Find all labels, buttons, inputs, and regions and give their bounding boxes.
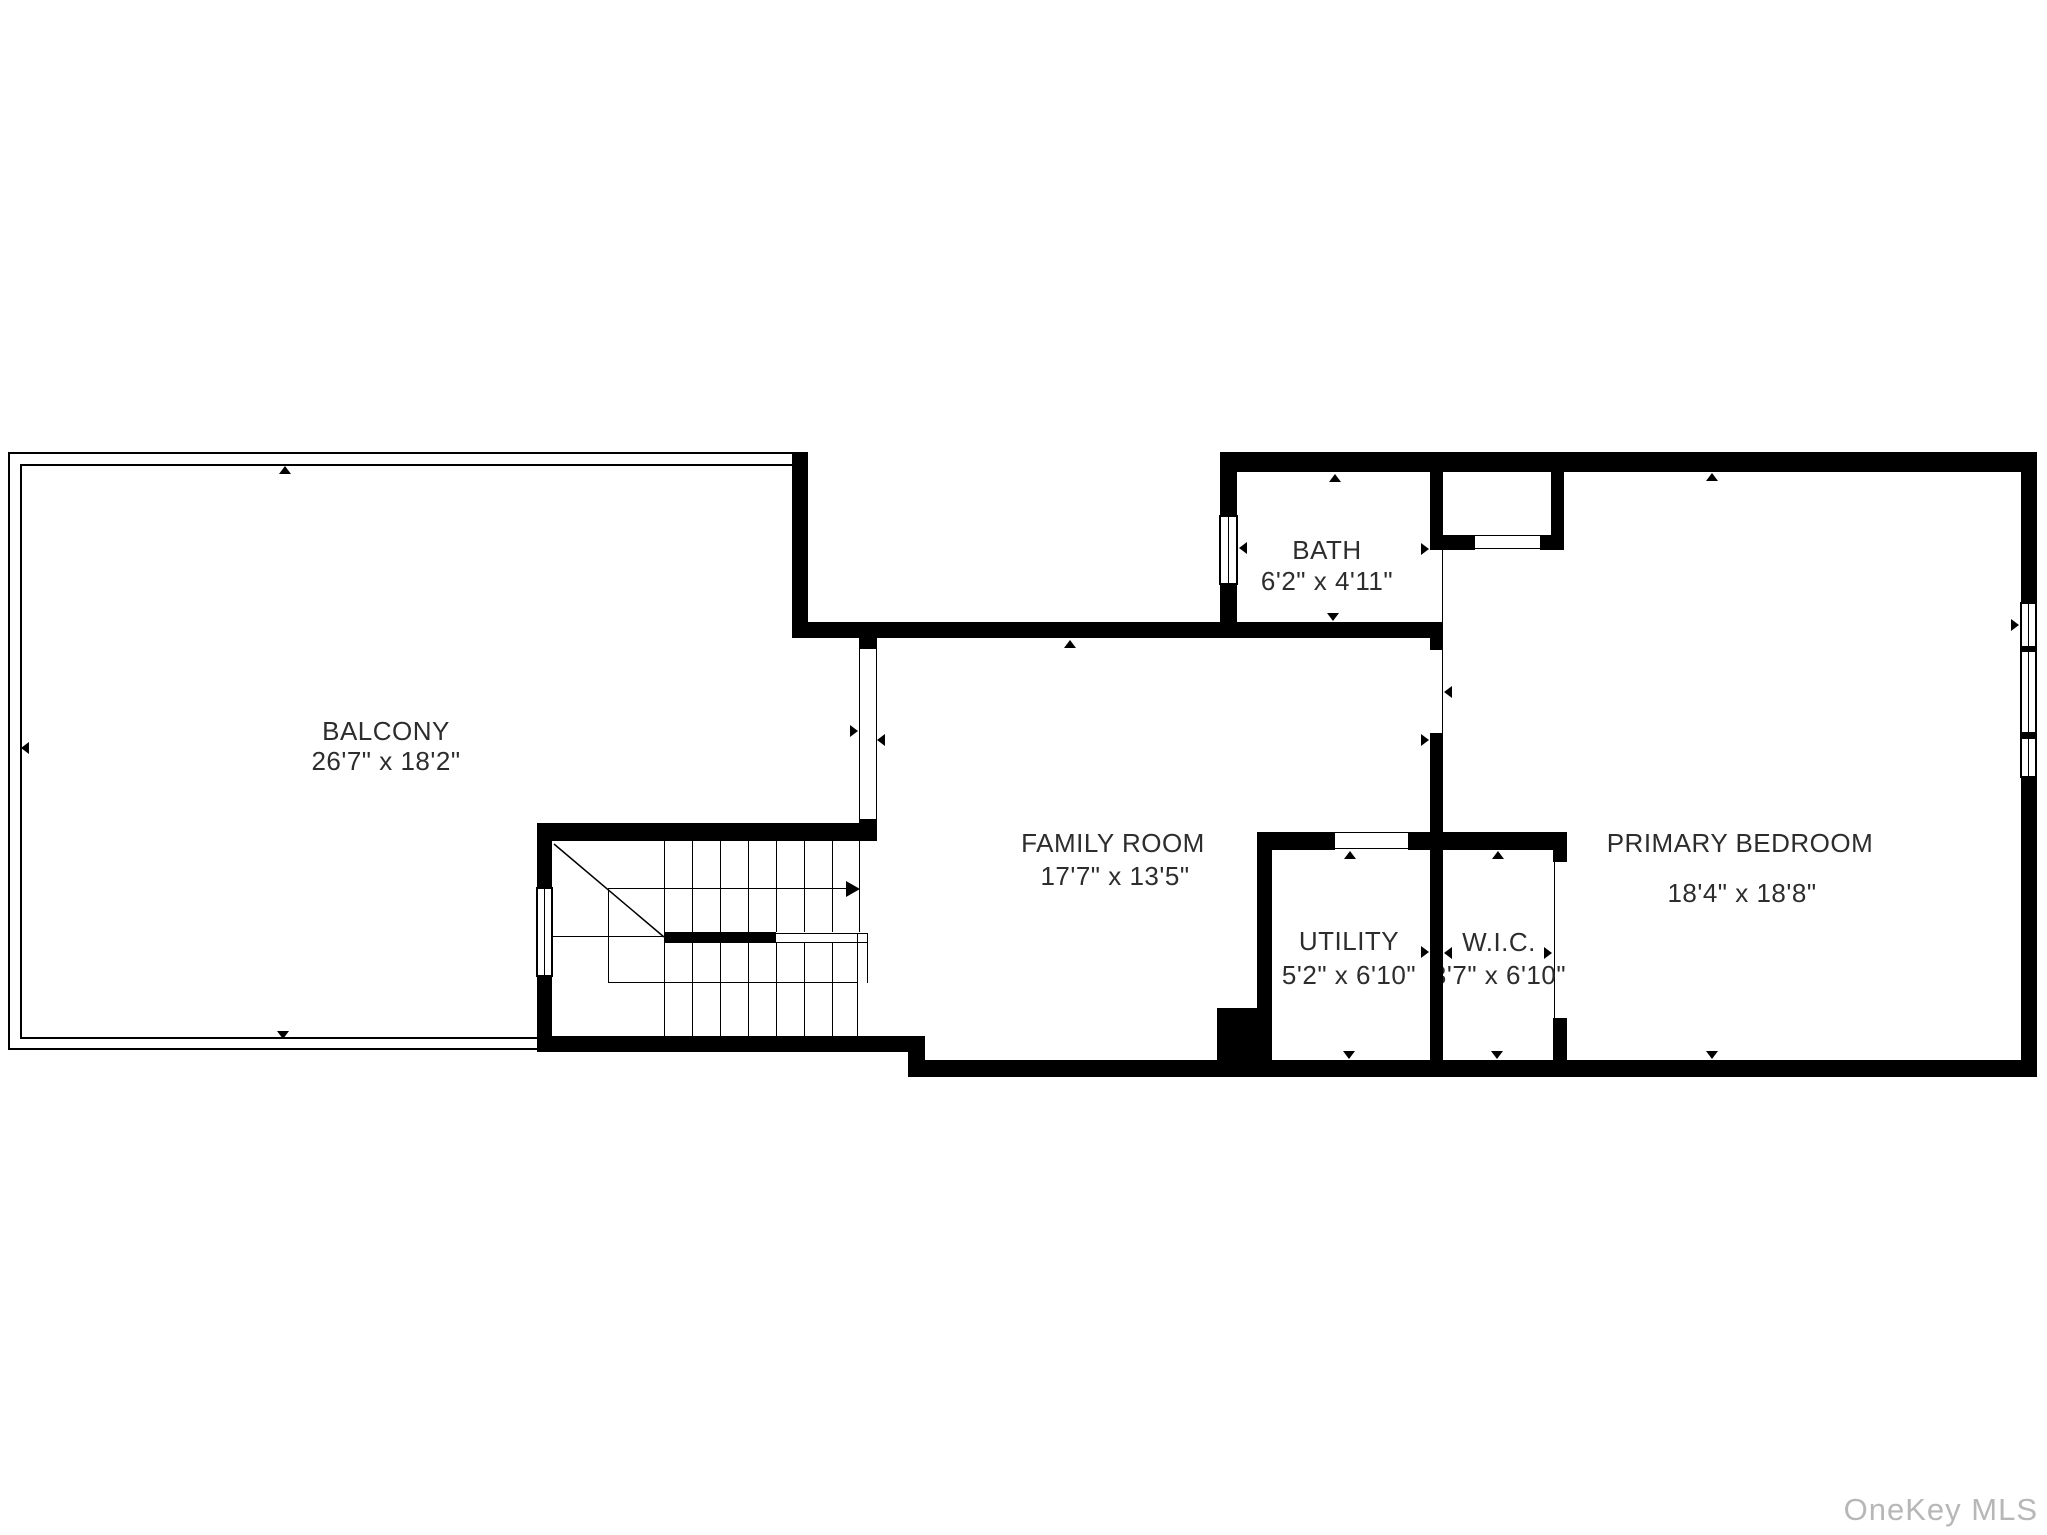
stair-tread bbox=[748, 943, 749, 1036]
wall-wic-top bbox=[1443, 832, 1567, 850]
wall-stair-top bbox=[537, 823, 877, 841]
stair-tread bbox=[804, 841, 805, 932]
arrow-icon-family-top bbox=[1064, 640, 1076, 648]
balcony-wall-left-outer bbox=[8, 452, 10, 1050]
closet-opening-top bbox=[1475, 535, 1540, 536]
wic-door-opening bbox=[1554, 862, 1555, 1018]
arrow-icon-utility-wall-a bbox=[1421, 946, 1429, 958]
room-dims-family-room: 17'7" x 13'5" bbox=[1040, 863, 1189, 889]
wall-closet-right bbox=[1551, 452, 1564, 548]
floor-plan: BALCONY 26'7" x 18'2" FAMILY ROOM 17'7" … bbox=[0, 0, 2047, 1535]
room-label-family-room: FAMILY ROOM bbox=[1021, 830, 1205, 856]
wall-bath-left-lower bbox=[1220, 585, 1237, 638]
balcony-wall-top-inner bbox=[20, 464, 792, 466]
arrow-icon-wic-door bbox=[1544, 947, 1552, 959]
room-dims-utility: 5'2" x 6'10" bbox=[1282, 962, 1416, 988]
stair-tread bbox=[832, 943, 833, 1036]
balcony-wall-bottom-outer bbox=[8, 1048, 550, 1050]
wall-passage-stub-top bbox=[859, 638, 877, 649]
watermark: OneKey MLS bbox=[1844, 1492, 2038, 1528]
balcony-wall-top-outer bbox=[8, 452, 808, 454]
utility-opening-top bbox=[1335, 832, 1408, 833]
wall-bath-left-upper bbox=[1220, 452, 1237, 515]
arrow-icon-wic-top bbox=[1492, 851, 1504, 859]
stair-tread bbox=[832, 841, 833, 932]
wall-closet-bottom-right bbox=[1540, 535, 1564, 550]
room-label-balcony: BALCONY bbox=[322, 718, 450, 744]
room-dims-balcony: 26'7" x 18'2" bbox=[311, 748, 460, 774]
stair-well-line bbox=[776, 942, 868, 943]
stair-well-line bbox=[776, 933, 868, 934]
arrow-icon-primary-top bbox=[1706, 473, 1718, 481]
wall-utility-top-right bbox=[1408, 832, 1430, 850]
wall-wic-corner-stub bbox=[1553, 850, 1567, 862]
arrow-icon-bath-door bbox=[1421, 543, 1429, 555]
wall-right-upper bbox=[2021, 452, 2037, 602]
stair-tread bbox=[804, 943, 805, 1036]
wall-family-room-top bbox=[792, 622, 1443, 638]
wall-wic-right-lower bbox=[1553, 1018, 1567, 1060]
stair-mid-wall bbox=[664, 932, 776, 943]
arrow-icon-bath-top bbox=[1329, 474, 1341, 482]
wall-right-lower bbox=[2021, 778, 2037, 1077]
stair-tread bbox=[776, 841, 777, 932]
room-dims-wic: 3'7" x 6'10" bbox=[1432, 962, 1566, 988]
arrow-icon-bedroom-door-b bbox=[1421, 734, 1429, 746]
room-dims-bath: 6'2" x 4'11" bbox=[1261, 568, 1393, 594]
room-label-wic: W.I.C. bbox=[1462, 929, 1536, 955]
stair-up-arrow-icon bbox=[846, 881, 860, 897]
arrow-icon-passage-b bbox=[877, 734, 885, 746]
wall-bath-right-upper bbox=[1430, 452, 1443, 545]
wall-utility-top-left bbox=[1257, 832, 1335, 850]
arrow-icon-utility-bottom bbox=[1343, 1051, 1355, 1059]
arrow-icon-balcony-left bbox=[21, 742, 29, 754]
window-symbol-bath bbox=[1219, 515, 1238, 585]
wall-doorway-stub bbox=[1430, 623, 1443, 650]
wall-main-top bbox=[1220, 452, 2037, 472]
wall-stair-left-upper bbox=[537, 823, 552, 887]
closet-opening-bottom bbox=[1475, 548, 1540, 549]
stair-passage-opening-left bbox=[859, 649, 860, 819]
arrow-icon-wic-bottom bbox=[1491, 1051, 1503, 1059]
wall-balcony-right bbox=[792, 452, 808, 638]
wall-stair-bottom bbox=[537, 1036, 925, 1052]
arrow-icon-balcony-bottom bbox=[277, 1031, 289, 1039]
room-dims-primary-bedroom: 18'4" x 18'8" bbox=[1667, 880, 1816, 906]
arrow-icon-balcony-top bbox=[279, 466, 291, 474]
window-symbol-stairs bbox=[536, 887, 553, 977]
stair-tread bbox=[692, 841, 693, 932]
stair-winder-line bbox=[608, 982, 858, 983]
wall-main-bottom bbox=[908, 1060, 2037, 1077]
stair-well-line bbox=[857, 933, 858, 983]
stair-tread bbox=[692, 943, 693, 1036]
stair-tread bbox=[664, 943, 665, 1036]
stair-tread bbox=[720, 841, 721, 932]
stair-tread bbox=[748, 841, 749, 932]
arrow-icon-bath-window bbox=[1239, 542, 1247, 554]
arrow-icon-bath-bottom bbox=[1327, 613, 1339, 621]
window-symbol-primary-bedroom bbox=[2020, 602, 2037, 778]
stair-tread bbox=[857, 983, 858, 1036]
utility-opening-bottom bbox=[1335, 848, 1408, 849]
wall-closet-bottom-left bbox=[1430, 535, 1475, 550]
bath-door-opening bbox=[1442, 545, 1443, 623]
bedroom-door-opening bbox=[1442, 650, 1443, 733]
stair-tread bbox=[720, 943, 721, 1036]
arrow-icon-primary-bottom bbox=[1706, 1051, 1718, 1059]
stair-tread bbox=[776, 943, 777, 1036]
arrow-icon-utility-door bbox=[1344, 851, 1356, 859]
arrow-icon-passage-a bbox=[850, 725, 858, 737]
wall-bedroom-left bbox=[1430, 733, 1443, 1060]
room-label-bath: BATH bbox=[1292, 537, 1361, 563]
room-label-utility: UTILITY bbox=[1299, 928, 1399, 954]
stair-well-line bbox=[867, 933, 868, 983]
arrow-icon-utility-wall-b bbox=[1444, 947, 1452, 959]
arrow-icon-primary-window bbox=[2011, 619, 2019, 631]
stair-break-line bbox=[552, 841, 672, 941]
arrow-icon-bedroom-door-a bbox=[1444, 686, 1452, 698]
room-label-primary-bedroom: PRIMARY BEDROOM bbox=[1607, 830, 1874, 856]
wall-pillar bbox=[1217, 1008, 1268, 1077]
